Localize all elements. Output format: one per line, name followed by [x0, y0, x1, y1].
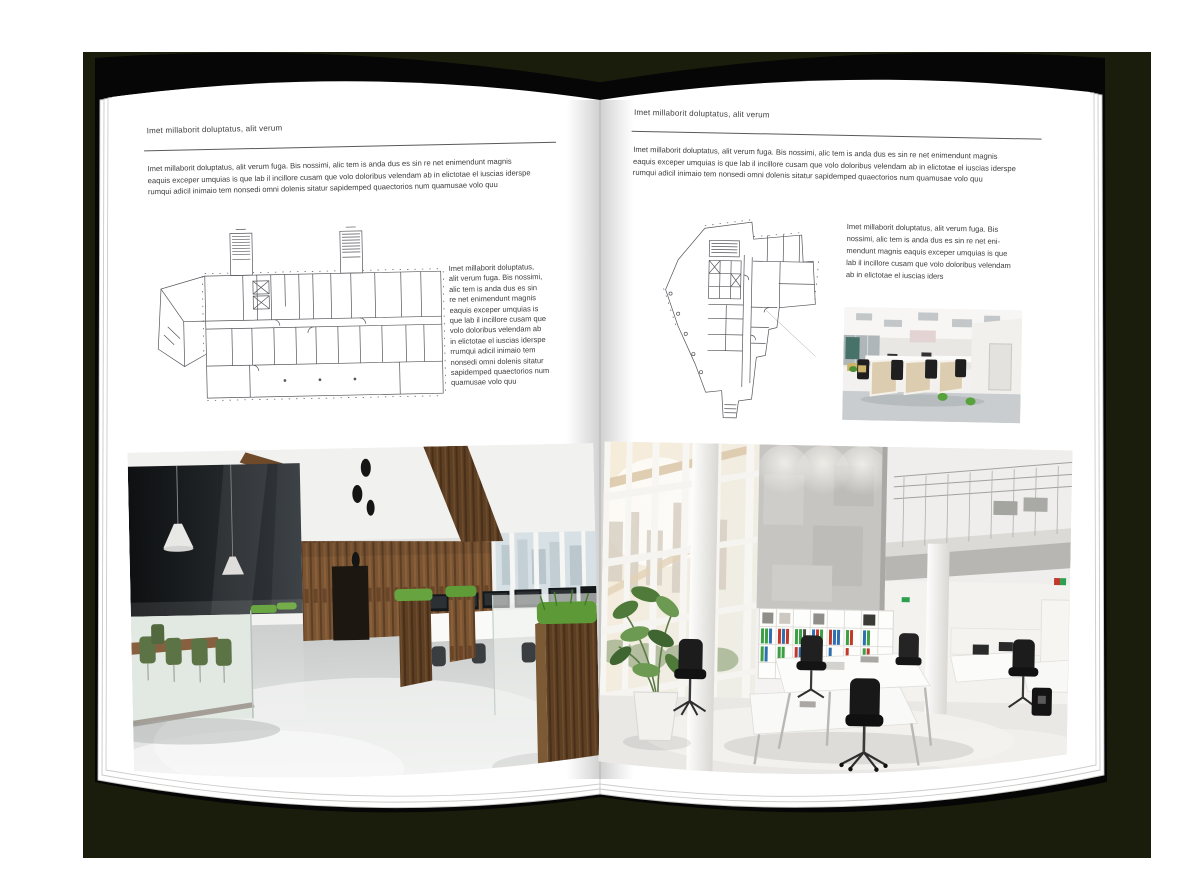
- photo-loft-office: [127, 443, 600, 797]
- left-intro-paragraph: Imet millaborit doluptatus, alit verum f…: [147, 154, 578, 198]
- photo-cubicle-office: [842, 307, 1022, 423]
- book-mockup-scene: Imet millaborit doluptatus, alit verum I…: [0, 0, 1200, 891]
- right-side-text: Imet millaborit doluptatus, alit verum f…: [846, 221, 1047, 285]
- right-intro-paragraph: Imet millaborit doluptatus, alit verum f…: [633, 144, 1064, 187]
- left-kicker: Imet millaborit doluptatus, alit verum: [147, 123, 283, 135]
- left-side-text: Imet millaborit doluptatus, alit verum f…: [449, 262, 572, 389]
- floor-plan-right: [646, 213, 846, 423]
- right-rule: [632, 131, 1042, 140]
- left-rule: [144, 142, 556, 152]
- photo-atrium-office: [598, 441, 1073, 794]
- right-page-content: Imet millaborit doluptatus, alit verum I…: [593, 50, 1102, 804]
- left-page-content: Imet millaborit doluptatus, alit verum I…: [102, 55, 609, 805]
- right-kicker: Imet millaborit doluptatus, alit verum: [634, 108, 770, 120]
- waste-bin-icon: [1032, 688, 1053, 716]
- floor-plan-left: [152, 221, 452, 427]
